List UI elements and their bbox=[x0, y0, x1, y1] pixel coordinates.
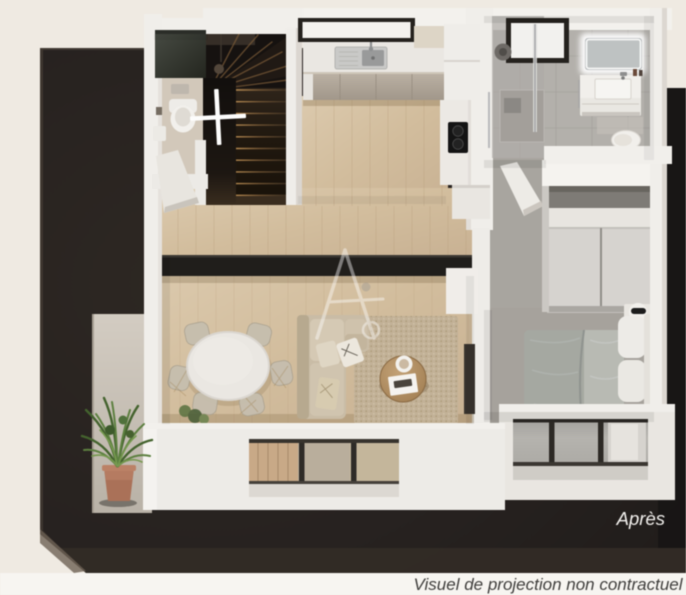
svg-text:Après: Après bbox=[616, 508, 665, 529]
svg-text:Visuel de projection non contr: Visuel de projection non contractuel bbox=[413, 575, 683, 594]
